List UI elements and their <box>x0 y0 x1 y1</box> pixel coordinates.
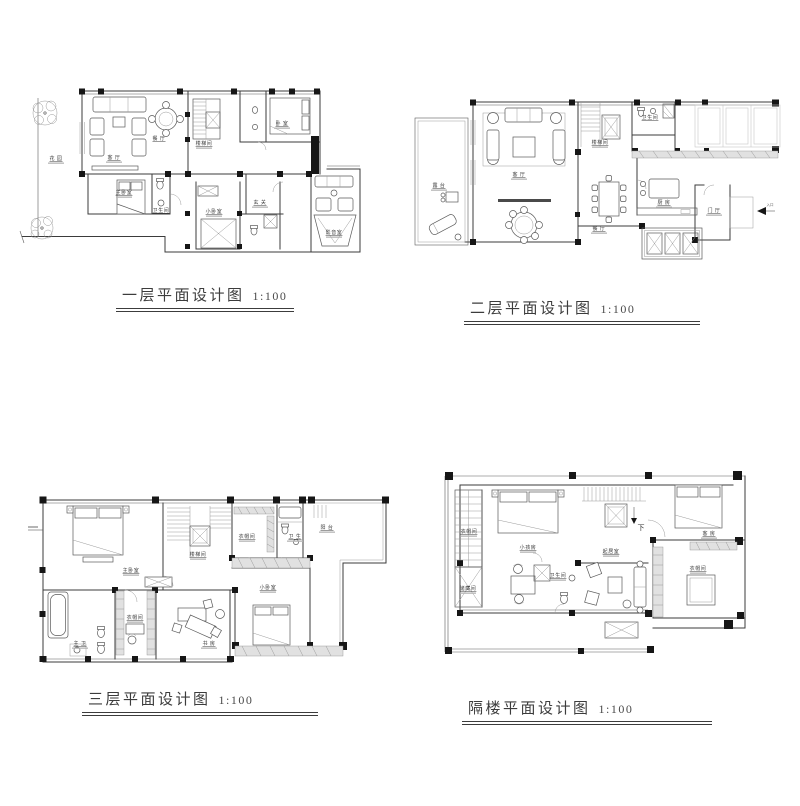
svg-text:阳 台: 阳 台 <box>320 524 333 531</box>
room-label: 书 房 <box>201 640 217 649</box>
svg-text:储藏间: 储藏间 <box>460 585 477 592</box>
lounge-chair <box>428 213 458 236</box>
room-label: 楼梯间 <box>190 551 207 560</box>
elevator-icon <box>602 115 620 139</box>
svg-text:花 园: 花 园 <box>49 155 62 162</box>
svg-text:主卧室: 主卧室 <box>116 189 133 196</box>
room-label: 露 台 <box>431 182 447 191</box>
drawing-sheet: 花 园 客 厅 餐 厅 楼梯间 卧 室 主卧室 卫生间 小卧室 玄 关 影音室 <box>0 0 800 806</box>
svg-text:主 卫: 主 卫 <box>73 640 86 647</box>
room-label: 影音室 <box>326 229 343 238</box>
room-label: 玄 关 <box>252 199 268 208</box>
plan1-room-labels: 花 园 客 厅 餐 厅 楼梯间 卧 室 主卧室 卫生间 小卧室 玄 关 影音室 <box>48 120 342 238</box>
svg-text:入口: 入口 <box>767 202 775 207</box>
svg-text:卫生间: 卫生间 <box>550 572 567 579</box>
room-label: 卫生间 <box>550 572 567 581</box>
elevator-icon <box>190 526 210 546</box>
plan2-deck <box>415 118 468 245</box>
tree-icon <box>33 101 57 125</box>
floor-plan-3-drawing: 主卧室 楼梯间 衣帽间 卫 生 阳 台 主 卫 衣帽间 书 房 小卧室 <box>28 478 403 678</box>
svg-text:衣帽间: 衣帽间 <box>127 614 144 621</box>
room-label: 客 厅 <box>106 154 122 163</box>
svg-text:客 房: 客 房 <box>702 530 715 537</box>
room-label: 衣帽间 <box>690 565 707 574</box>
room-label: 卫生间 <box>153 207 170 214</box>
plan2-skylight <box>642 228 702 259</box>
plan-scale-label: 1:100 <box>601 302 636 316</box>
room-label: 客 厅 <box>511 171 527 180</box>
plan-scale-label: 1:100 <box>599 702 634 716</box>
room-label: 主卧室 <box>123 567 140 576</box>
room-label: 衣帽间 <box>127 614 144 623</box>
svg-text:小卧室: 小卧室 <box>260 584 277 591</box>
svg-text:卫 生: 卫 生 <box>288 533 301 540</box>
svg-text:客 厅: 客 厅 <box>512 171 525 178</box>
svg-text:衣帽间: 衣帽间 <box>239 533 256 540</box>
tree-icon <box>31 217 53 240</box>
svg-text:楼梯间: 楼梯间 <box>592 139 609 146</box>
svg-text:衣帽间: 衣帽间 <box>690 565 707 572</box>
plan-title-floor-1: 一层平面设计图1:100 <box>116 284 294 312</box>
plan-title-text: 二层平面设计图 <box>470 301 593 317</box>
svg-text:门 厅: 门 厅 <box>707 207 720 214</box>
plan-scale-label: 1:100 <box>219 693 254 707</box>
plan-title-text: 一层平面设计图 <box>122 288 245 304</box>
room-label: 阳 台 <box>319 524 335 533</box>
room-label: 小孩房 <box>520 544 537 553</box>
elevator-icon <box>605 504 627 527</box>
floor-plan-4-drawing: 下 <box>438 452 753 674</box>
room-label: 卫生间 <box>642 114 659 121</box>
svg-text:影音室: 影音室 <box>326 229 343 236</box>
plan4-stairs: 下 <box>582 487 646 532</box>
svg-text:起居室: 起居室 <box>603 548 620 555</box>
svg-text:主卧室: 主卧室 <box>123 567 140 574</box>
room-label: 衣帽间 <box>461 528 478 537</box>
svg-text:餐 厅: 餐 厅 <box>152 135 165 142</box>
floor-plan-1-drawing: 花 园 客 厅 餐 厅 楼梯间 卧 室 主卧室 卫生间 小卧室 玄 关 影音室 <box>18 82 370 270</box>
room-label: 楼梯间 <box>196 140 213 149</box>
room-label: 衣帽间 <box>239 533 256 542</box>
svg-text:楼梯间: 楼梯间 <box>196 140 213 147</box>
svg-text:书 房: 书 房 <box>202 640 215 647</box>
plan-title-floor-3: 三层平面设计图1:100 <box>82 688 318 716</box>
plan3-stairs <box>167 506 232 558</box>
room-label: 餐 厅 <box>152 135 165 142</box>
plan4-room-labels: 衣帽间 储藏间 小孩房 卫生间 起居室 客 房 衣帽间 <box>460 528 717 594</box>
plan-scale-label: 1:100 <box>253 289 288 303</box>
plan3-furniture <box>48 505 343 656</box>
svg-text:客 厅: 客 厅 <box>107 154 120 161</box>
room-label: 花 园 <box>48 155 64 164</box>
elevator-icon <box>206 112 220 128</box>
svg-text:小孩房: 小孩房 <box>520 544 537 551</box>
room-label: 储藏间 <box>460 585 477 594</box>
svg-text:楼梯间: 楼梯间 <box>190 551 207 558</box>
svg-text:衣帽间: 衣帽间 <box>461 528 478 535</box>
svg-text:卫生间: 卫生间 <box>642 114 659 121</box>
floor-plan-2-drawing: 入口 露 台 客 厅 楼梯间 卫生间 餐 厅 厨 房 门 厅 <box>413 85 785 277</box>
entry-arrow-icon: 入口 <box>757 202 775 215</box>
room-label: 小卧室 <box>206 208 223 217</box>
room-label: 厨 房 <box>656 199 672 208</box>
plan-title-floor-4: 隔楼平面设计图1:100 <box>462 697 712 725</box>
svg-text:小卧室: 小卧室 <box>206 208 223 215</box>
plan4-furniture <box>455 485 737 638</box>
svg-text:卫生间: 卫生间 <box>153 207 170 214</box>
stair-direction-label: 下 <box>638 524 645 532</box>
room-label: 门 厅 <box>706 207 722 216</box>
plan1-stairs <box>193 99 220 139</box>
svg-text:餐 厅: 餐 厅 <box>592 225 605 232</box>
plan-title-text: 隔楼平面设计图 <box>468 701 591 717</box>
room-label: 餐 厅 <box>591 225 607 234</box>
svg-text:玄 关: 玄 关 <box>253 199 266 206</box>
svg-text:露 台: 露 台 <box>432 182 445 189</box>
plan-title-floor-2: 二层平面设计图1:100 <box>464 297 700 325</box>
room-label: 起居室 <box>603 548 620 557</box>
room-label: 小卧室 <box>260 584 277 593</box>
svg-text:厨 房: 厨 房 <box>657 199 670 206</box>
room-label: 主 卫 <box>72 640 88 649</box>
room-label: 客 房 <box>701 530 717 539</box>
svg-text:卧 室: 卧 室 <box>275 120 288 127</box>
plan-title-text: 三层平面设计图 <box>88 692 211 708</box>
